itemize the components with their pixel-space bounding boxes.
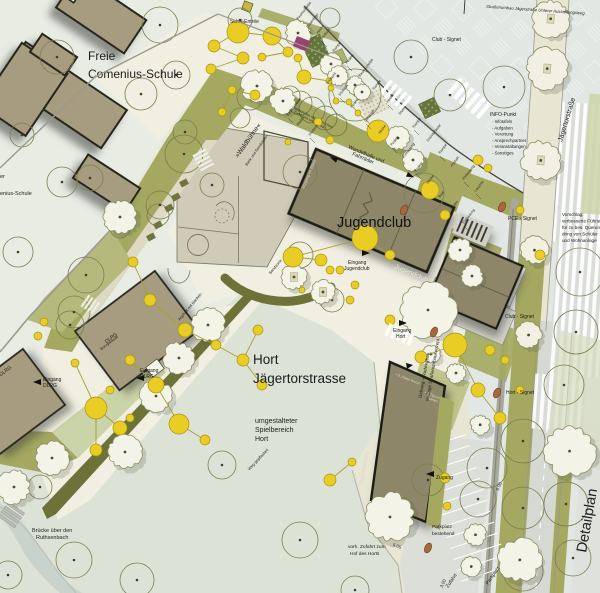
svg-text:- Verortung: - Verortung (492, 132, 514, 137)
svg-text:enius-Schule: enius-Schule (0, 191, 32, 197)
svg-text:Jägertorstrasse: Jägertorstrasse (253, 371, 346, 386)
svg-text:Hof des Horts: Hof des Horts (350, 551, 380, 557)
svg-text:- Ansprechpartner: - Ansprechpartner (492, 138, 527, 143)
svg-text:Ruthsenbach: Ruthsenbach (36, 535, 68, 541)
svg-text:Spielbereich: Spielbereich (255, 427, 294, 434)
svg-text:- Sonstiges: - Sonstiges (492, 151, 514, 156)
svg-text:Jugendclub: Jugendclub (344, 266, 370, 272)
svg-text:- Veranstaltungen: - Veranstaltungen (492, 144, 526, 149)
svg-text:Hort: Hort (396, 334, 406, 340)
svg-text:verbesserte Führung: verbesserte Führung (562, 219, 600, 224)
svg-text:Club - Signet: Club - Signet (505, 314, 535, 320)
svg-text:Jugendclub: Jugendclub (337, 215, 411, 231)
svg-text:Freie: Freie (88, 49, 116, 63)
svg-text:Hort: Hort (253, 352, 279, 367)
svg-text:DLRG: DLRG (43, 383, 57, 389)
svg-text:Club - Signet: Club - Signet (432, 37, 462, 43)
svg-text:PCE - Signet: PCE - Signet (508, 216, 538, 222)
svg-text:umgestalteter: umgestalteter (255, 418, 298, 425)
svg-text:dring von Schüler: dring von Schüler (562, 232, 598, 237)
svg-text:Zugang: Zugang (436, 475, 453, 481)
svg-text:er: er (0, 174, 5, 180)
svg-text:- Infotafeln: - Infotafeln (492, 119, 513, 124)
svg-text:und Wohnanlage: und Wohnanlage (562, 238, 597, 243)
svg-text:Vorschlag:: Vorschlag: (562, 212, 583, 217)
svg-text:Hort - Signet: Hort - Signet (506, 390, 535, 396)
svg-text:vorh. Zufahrt zum: vorh. Zufahrt zum (348, 544, 386, 550)
svg-text:DLRG: DLRG (140, 374, 154, 380)
svg-text:bestehend: bestehend (432, 531, 455, 537)
svg-text:Brücke über den: Brücke über den (32, 528, 72, 534)
svg-text:INFO-Punkt: INFO-Punkt (490, 112, 517, 118)
svg-text:für zu bes. Querung: für zu bes. Querung (562, 225, 600, 230)
svg-text:- Aufgaben: - Aufgaben (492, 125, 513, 130)
svg-text:Hort: Hort (255, 436, 268, 443)
svg-text:Parkplatz: Parkplatz (432, 524, 453, 530)
